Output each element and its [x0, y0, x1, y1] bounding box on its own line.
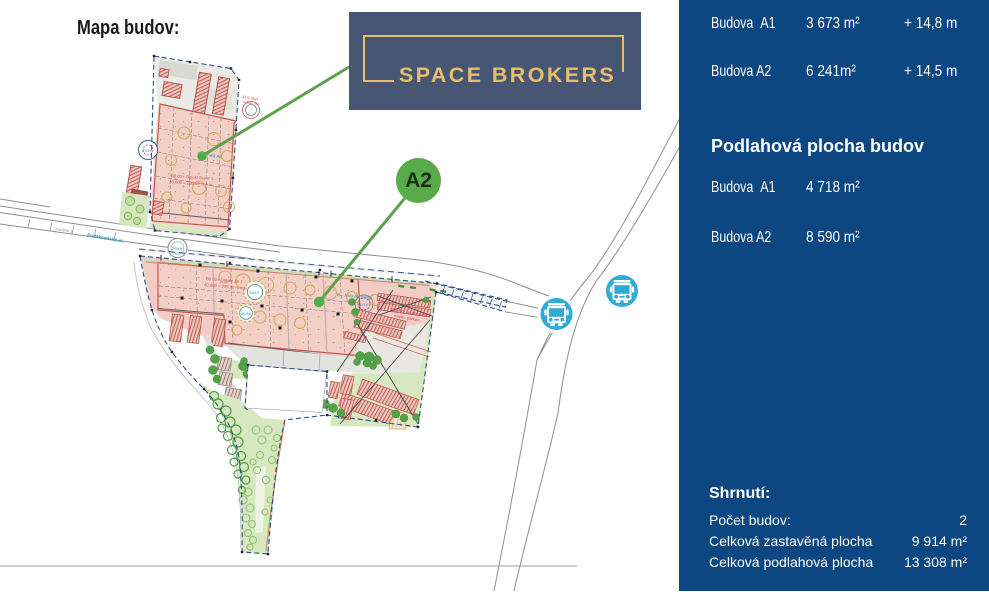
svg-text:39/19: 39/19	[249, 290, 260, 295]
svg-text:29/19: 29/19	[172, 246, 183, 251]
svg-text:Poděbradská ul.: Poděbradská ul.	[87, 233, 125, 245]
svg-text:40/19: 40/19	[358, 302, 369, 307]
svg-text:vybav. úz: vybav. úz	[243, 100, 259, 106]
svg-text:38/19: 38/19	[241, 311, 252, 316]
